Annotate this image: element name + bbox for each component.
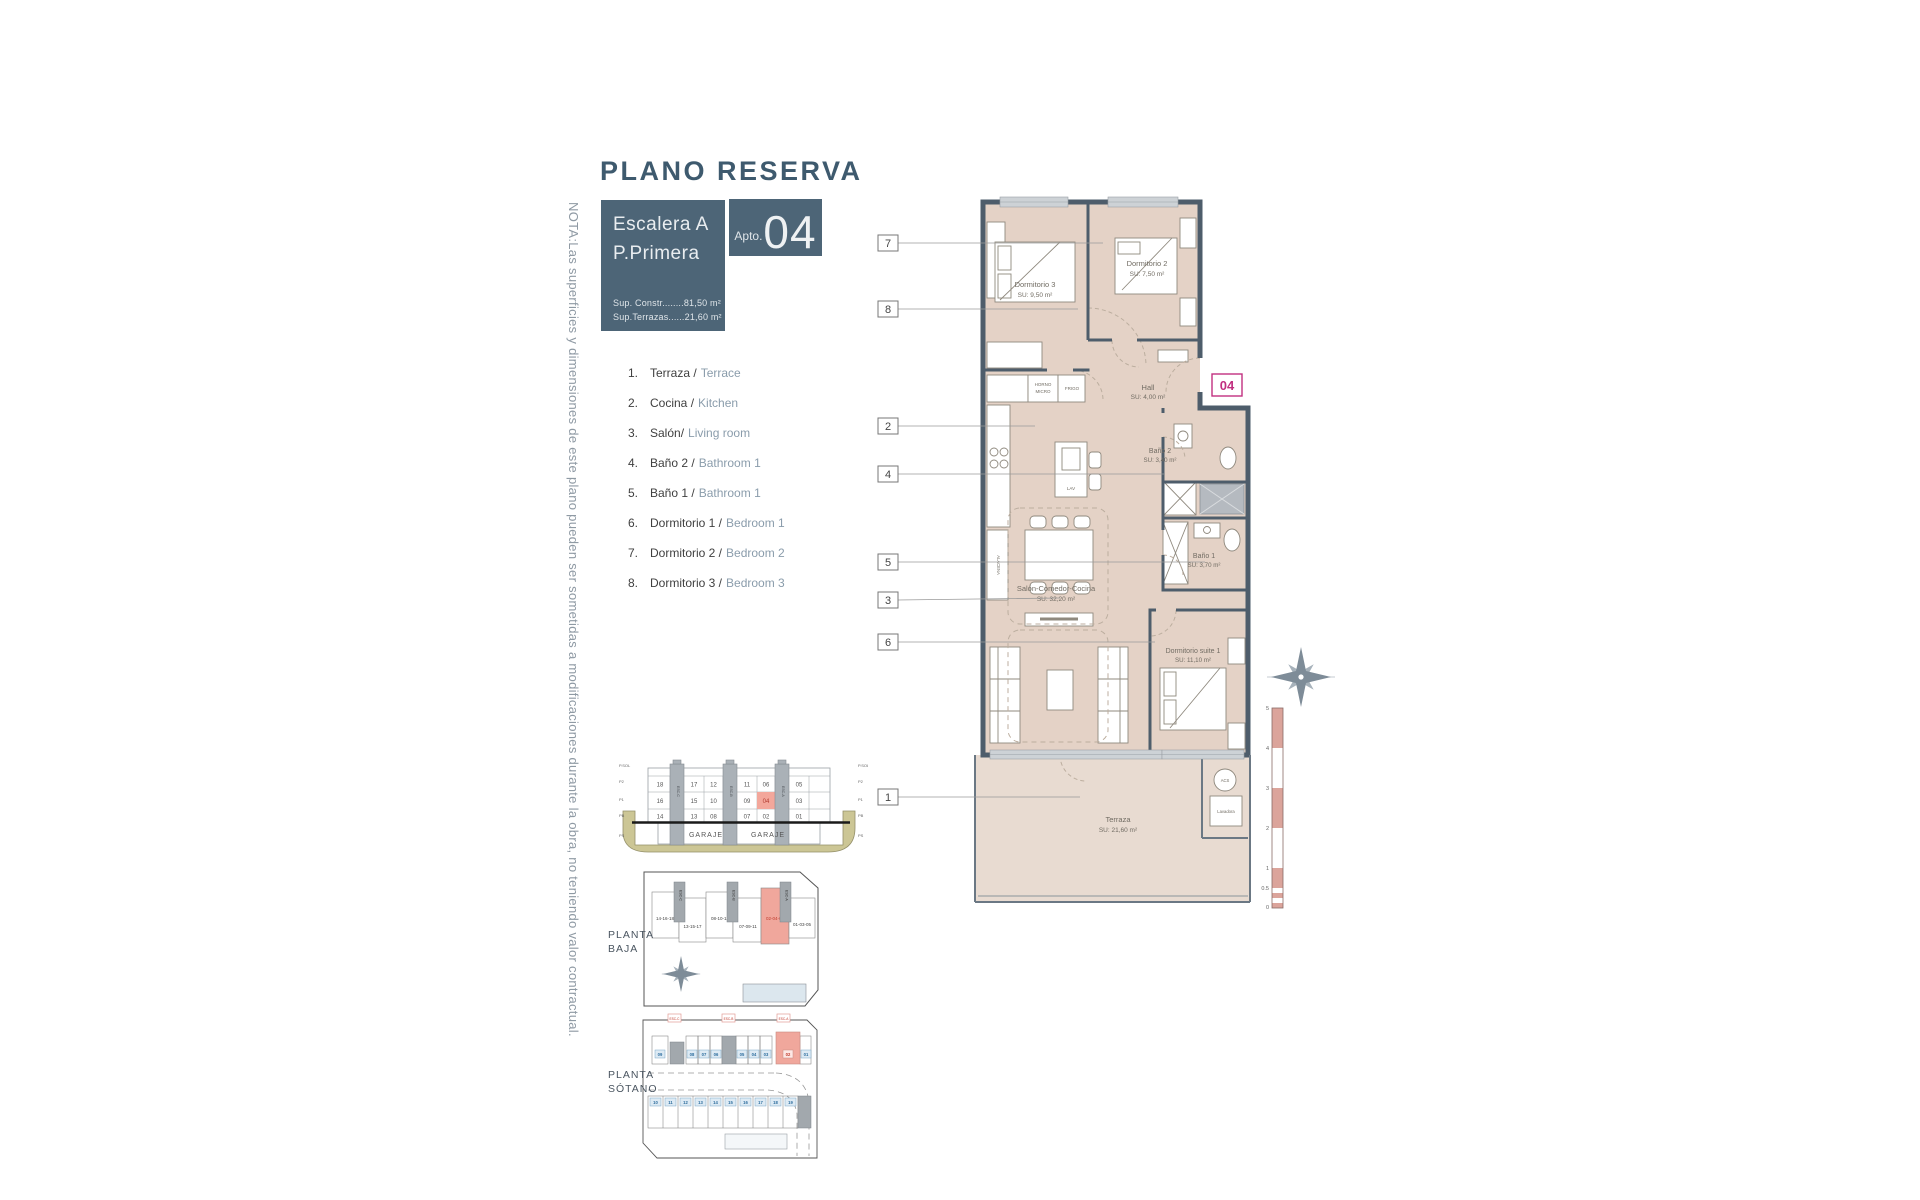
svg-text:ESC-C: ESC-C — [679, 890, 683, 901]
svg-text:0.5: 0.5 — [1261, 886, 1269, 892]
svg-text:P2: P2 — [858, 779, 864, 784]
svg-text:PS: PS — [619, 833, 625, 838]
svg-text:Hall: Hall — [1142, 383, 1155, 392]
svg-text:02: 02 — [786, 1052, 791, 1057]
svg-text:13: 13 — [698, 1100, 703, 1105]
room-legend: 1.Terraza /Terrace 2.Cocina /Kitchen 3.S… — [628, 366, 785, 606]
svg-text:3: 3 — [1266, 786, 1269, 792]
unit-info-box: Escalera A P.Primera Sup. Constr........… — [601, 200, 725, 331]
scale-bar: 5 4 3 2 1 0.5 0 — [1261, 706, 1283, 911]
svg-text:P.SOL: P.SOL — [619, 763, 631, 768]
svg-text:PLANTA: PLANTA — [608, 929, 654, 941]
svg-text:07: 07 — [702, 1052, 707, 1057]
svg-text:12: 12 — [710, 783, 717, 789]
svg-text:SU: 32,20 m²: SU: 32,20 m² — [1037, 596, 1076, 603]
legend-item: 1.Terraza /Terrace — [628, 366, 785, 380]
svg-text:13-15-17: 13-15-17 — [683, 924, 702, 929]
legend-item: 3.Salón/Living room — [628, 426, 785, 440]
pool — [743, 984, 806, 1002]
svg-text:14: 14 — [657, 815, 664, 821]
legend-item: 6.Dormitorio 1 /Bedroom 1 — [628, 516, 785, 530]
planta-sotano-plan: ESC-C ESC-B ESC-A 09 08 07 06 05 04 03 0… — [608, 1012, 863, 1190]
apartment-number-box: Apto. 04 — [729, 199, 822, 256]
svg-text:04: 04 — [1220, 378, 1235, 393]
svg-text:07: 07 — [744, 815, 751, 821]
svg-text:02: 02 — [763, 815, 770, 821]
svg-text:MICRO: MICRO — [1036, 389, 1051, 394]
pool-outline — [725, 1134, 787, 1149]
svg-text:SU: 7,50 m²: SU: 7,50 m² — [1130, 271, 1166, 278]
svg-text:04: 04 — [763, 799, 770, 805]
legend-item: 8.Dormitorio 3 /Bedroom 3 — [628, 576, 785, 590]
svg-text:ESC-A: ESC-A — [781, 786, 785, 797]
svg-text:11: 11 — [668, 1100, 673, 1105]
svg-text:SU: 3,70 m²: SU: 3,70 m² — [1187, 562, 1220, 569]
svg-text:ALACENA: ALACENA — [996, 555, 1001, 575]
page-title: PLANO RESERVA — [600, 156, 863, 187]
svg-text:03: 03 — [764, 1052, 769, 1057]
escalera-label: Escalera A — [613, 210, 725, 239]
svg-text:HORNO: HORNO — [1035, 382, 1052, 387]
svg-text:P2: P2 — [619, 779, 625, 784]
floor-plan: Dormitorio 3 SU: 9,50 m² Dormitorio 2 SU… — [860, 190, 1360, 960]
sup-terrazas: Sup.Terrazas......21,60 m² — [613, 311, 725, 325]
svg-text:16: 16 — [657, 799, 664, 805]
svg-text:Terraza: Terraza — [1105, 815, 1131, 824]
svg-text:7: 7 — [885, 238, 891, 250]
svg-text:5: 5 — [885, 557, 891, 569]
svg-text:8: 8 — [885, 304, 891, 316]
svg-text:11: 11 — [744, 783, 751, 789]
svg-text:PB: PB — [858, 813, 864, 818]
svg-text:1: 1 — [885, 792, 891, 804]
elevator-shaft — [1200, 484, 1244, 514]
svg-text:ESC-C: ESC-C — [670, 1017, 681, 1021]
sup-constr: Sup. Constr........81,50 m² — [613, 297, 725, 311]
svg-text:Dormitorio 3: Dormitorio 3 — [1015, 280, 1056, 289]
svg-text:2: 2 — [1266, 826, 1269, 832]
svg-text:SU: 4,00 m²: SU: 4,00 m² — [1131, 394, 1167, 401]
svg-text:ESC-B: ESC-B — [724, 1017, 734, 1021]
svg-text:01: 01 — [796, 815, 803, 821]
svg-text:PS: PS — [858, 833, 864, 838]
svg-text:ESC-B: ESC-B — [729, 786, 733, 797]
svg-text:12: 12 — [683, 1100, 688, 1105]
svg-text:17: 17 — [758, 1100, 763, 1105]
svg-text:LAV: LAV — [1067, 486, 1075, 491]
svg-text:ESC-C: ESC-C — [676, 786, 680, 797]
unit-badge: 04 — [1212, 374, 1242, 396]
svg-text:09: 09 — [744, 799, 751, 805]
svg-text:Lavadora: Lavadora — [1217, 809, 1235, 814]
svg-text:4: 4 — [1266, 746, 1269, 752]
svg-text:03: 03 — [796, 799, 803, 805]
svg-text:5: 5 — [1266, 706, 1269, 712]
legend-item: 7.Dormitorio 2 /Bedroom 2 — [628, 546, 785, 560]
svg-text:ESC-A: ESC-A — [785, 890, 789, 901]
svg-text:P.SOL: P.SOL — [858, 763, 868, 768]
svg-text:3: 3 — [885, 595, 891, 607]
svg-text:01-03-05: 01-03-05 — [793, 922, 812, 927]
svg-text:SU: 21,60 m²: SU: 21,60 m² — [1099, 827, 1138, 834]
svg-text:18: 18 — [657, 783, 664, 789]
svg-text:ACS: ACS — [1221, 778, 1230, 783]
planta-baja-plan: 14-16-18 13-15-17 08-10-12 07-09-11 02-0… — [608, 862, 863, 1012]
svg-text:Salón-Comedor-Cocina: Salón-Comedor-Cocina — [1017, 584, 1096, 593]
svg-text:1: 1 — [1266, 866, 1269, 872]
plano-reserva-sheet: NOTA:Las superficies y dimensiones de es… — [0, 0, 1920, 1200]
svg-text:6: 6 — [885, 637, 891, 649]
svg-text:Baño 2: Baño 2 — [1149, 448, 1171, 455]
apto-label: Apto. — [734, 229, 762, 243]
legend-item: 4.Baño 2 /Bathroom 1 — [628, 456, 785, 470]
svg-text:04: 04 — [752, 1052, 757, 1057]
svg-text:SU: 11,10 m²: SU: 11,10 m² — [1175, 657, 1211, 664]
svg-text:4: 4 — [885, 469, 891, 481]
svg-text:ESC-B: ESC-B — [732, 890, 736, 901]
svg-text:10: 10 — [653, 1100, 658, 1105]
svg-text:GARAJE: GARAJE — [689, 832, 723, 839]
svg-text:Dormitorio 2: Dormitorio 2 — [1127, 259, 1168, 268]
svg-text:GARAJE: GARAJE — [751, 832, 785, 839]
svg-text:18: 18 — [773, 1100, 778, 1105]
svg-text:0: 0 — [1266, 905, 1269, 911]
apto-number: 04 — [763, 212, 816, 253]
svg-text:17: 17 — [691, 783, 698, 789]
compass-icon — [1267, 647, 1335, 707]
svg-text:BAJA: BAJA — [608, 943, 638, 955]
svg-text:PLANTA: PLANTA — [608, 1069, 654, 1081]
building-section: ESC-C ESC-B ESC-A 18 17 12 11 06 05 16 1… — [618, 756, 868, 871]
svg-text:09: 09 — [658, 1052, 663, 1057]
svg-text:16: 16 — [743, 1100, 748, 1105]
svg-text:ESC-A: ESC-A — [779, 1017, 790, 1021]
svg-text:PB: PB — [619, 813, 625, 818]
svg-text:19: 19 — [788, 1100, 793, 1105]
svg-text:SÓTANO: SÓTANO — [608, 1082, 658, 1095]
svg-text:07-09-11: 07-09-11 — [739, 924, 757, 929]
svg-text:FRIGO: FRIGO — [1065, 386, 1080, 391]
sotano-core — [798, 1096, 811, 1128]
svg-text:2: 2 — [885, 421, 891, 433]
svg-text:06: 06 — [763, 783, 770, 789]
legend-item: 2.Cocina /Kitchen — [628, 396, 785, 410]
highlighted-stall-block — [776, 1032, 800, 1064]
svg-text:P1: P1 — [619, 797, 625, 802]
svg-text:05: 05 — [796, 783, 803, 789]
svg-text:06: 06 — [714, 1052, 719, 1057]
svg-text:14: 14 — [713, 1100, 718, 1105]
svg-text:15: 15 — [691, 799, 698, 805]
disclaimer-note: NOTA:Las superficies y dimensiones de es… — [566, 202, 581, 1017]
legend-item: 5.Baño 1 /Bathroom 1 — [628, 486, 785, 500]
svg-text:SU: 9,50 m²: SU: 9,50 m² — [1018, 292, 1054, 299]
planta-label: P.Primera — [613, 239, 725, 268]
sotano-core — [670, 1042, 684, 1064]
svg-text:05: 05 — [740, 1052, 745, 1057]
svg-text:15: 15 — [728, 1100, 733, 1105]
svg-text:14-16-18: 14-16-18 — [656, 916, 675, 921]
sotano-core — [722, 1036, 736, 1064]
svg-text:08-10-12: 08-10-12 — [711, 916, 730, 921]
svg-text:13: 13 — [691, 815, 698, 821]
svg-text:SU: 3,40 m²: SU: 3,40 m² — [1143, 457, 1176, 464]
svg-text:P1: P1 — [858, 797, 864, 802]
svg-text:08: 08 — [710, 815, 717, 821]
svg-text:Dormitorio suite 1: Dormitorio suite 1 — [1166, 648, 1221, 655]
svg-text:10: 10 — [710, 799, 717, 805]
svg-text:01: 01 — [804, 1052, 809, 1057]
svg-text:08: 08 — [690, 1052, 695, 1057]
svg-text:Baño 1: Baño 1 — [1193, 553, 1215, 560]
